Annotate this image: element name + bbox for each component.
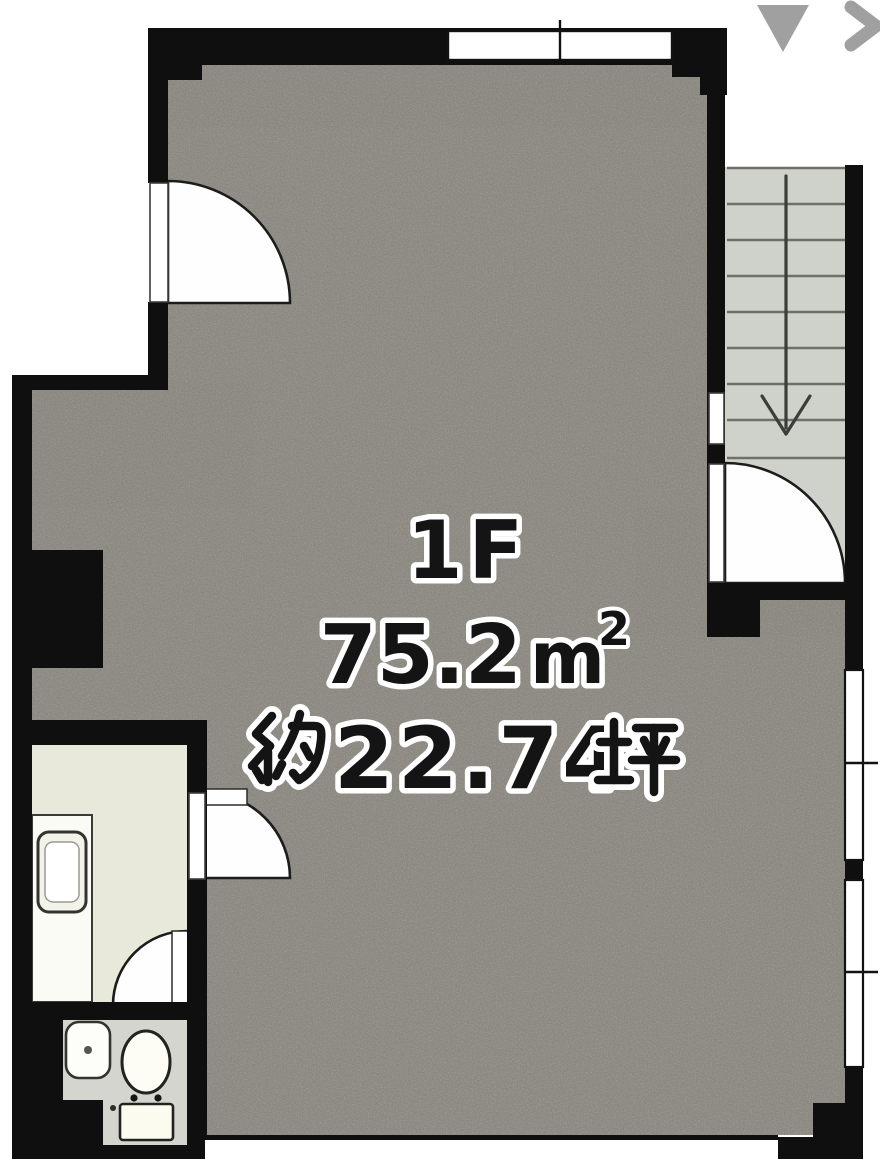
wash-basin <box>66 1022 110 1078</box>
floorplan-svg: 1F 75.2 m 2 22.74 <box>0 0 880 1159</box>
area-m2-value: 75.2 <box>320 608 522 703</box>
kitchen-sink <box>38 832 86 912</box>
door-opening-top-left <box>150 183 168 302</box>
door-opening-kitchen <box>189 793 205 879</box>
window-bottom <box>205 1140 778 1159</box>
area-tsubo-label: 22.74 <box>334 709 626 809</box>
area-m2-unit: m <box>530 616 605 700</box>
area-tsubo-value: 22.74 <box>334 709 626 809</box>
area-m2-exponent: 2 <box>598 602 630 656</box>
screenshot-root: 1F 75.2 m 2 22.74 <box>0 0 880 1159</box>
toilet-door-leaf <box>172 931 188 1005</box>
kanji-yaku-glyph <box>252 714 321 782</box>
floor-label: 1F <box>407 504 529 597</box>
opening-stairs-upper <box>709 393 724 444</box>
door-opening-stairs <box>709 464 724 582</box>
kitchen-door-leaf <box>205 789 247 805</box>
area-m2-label: 75.2 m 2 <box>320 602 630 703</box>
